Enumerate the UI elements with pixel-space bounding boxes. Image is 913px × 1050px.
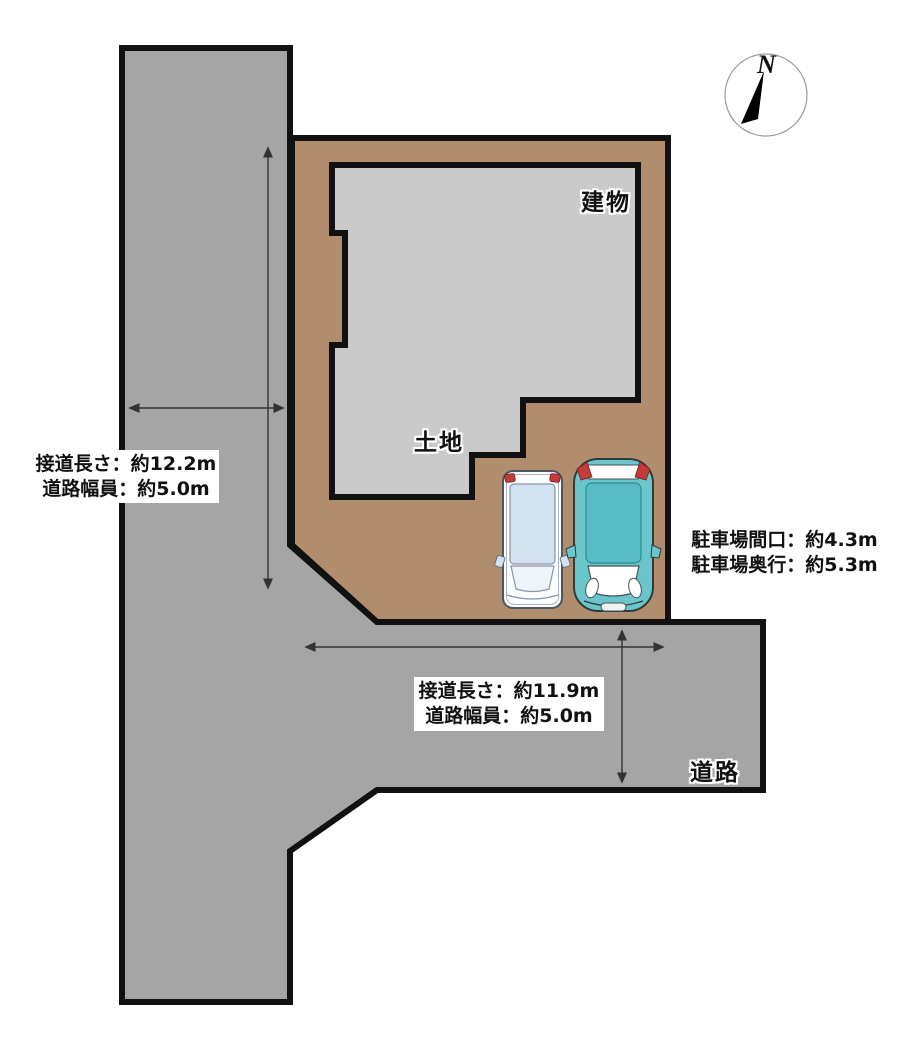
car-roof [586,483,641,563]
road-label: 道路 [690,753,740,787]
land-label: 土地 [414,423,464,457]
rear-window [585,465,642,479]
site-plan-drawing [0,0,913,1050]
taillight-left [504,473,515,482]
car-white [494,471,570,608]
left-road-measurements: 接道長さ：約12.2m 道路幅員：約5.0m [33,450,219,503]
bottom-road-width: 道路幅員：約5.0m [425,704,592,729]
taillight-right [549,473,560,482]
bottom-road-frontage: 接道長さ：約11.9m [419,679,600,704]
windshield [511,566,554,592]
parking-frontage: 駐車場間口：約4.3m [691,528,877,553]
car-roof [510,484,555,564]
parking-depth: 駐車場奥行：約5.3m [691,553,877,578]
parking-measurements: 駐車場間口：約4.3m 駐車場奥行：約5.3m [679,527,890,579]
bottom-road-measurements: 接道長さ：約11.9m 道路幅員：約5.0m [414,677,604,731]
north-label: N [757,50,776,80]
building-label: 建物 [581,183,631,217]
left-road-width: 道路幅員：約5.0m [42,477,209,502]
left-road-frontage: 接道長さ：約12.2m [36,452,217,477]
car-teal [566,459,661,611]
site-plan: N 建物 土地 道路 接道長さ：約12.2m 道路幅員：約5.0m 駐車場間口：… [0,0,913,1050]
front-plate [601,603,626,611]
